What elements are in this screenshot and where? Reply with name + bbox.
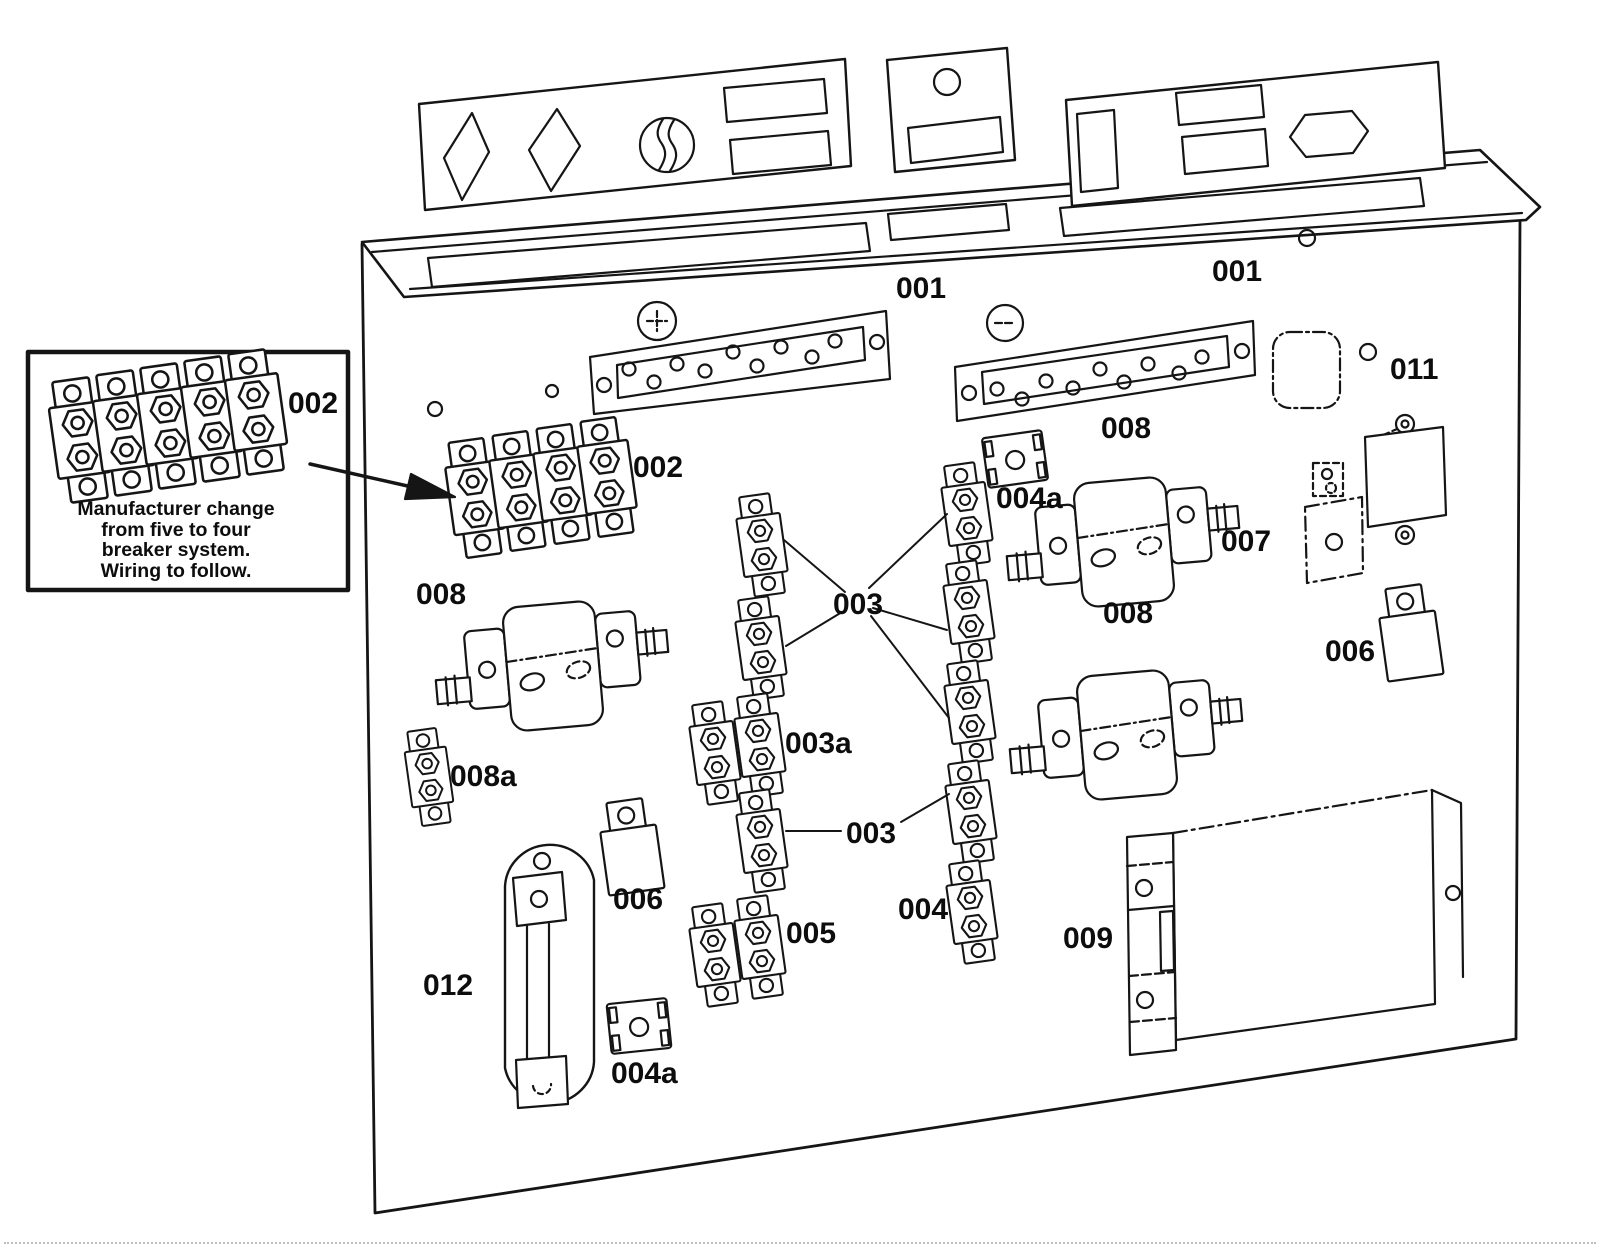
part-label-002-inset: 002 bbox=[288, 387, 338, 421]
part-label-004a-bottom: 004a bbox=[611, 1057, 678, 1091]
part-label-011: 011 bbox=[1390, 353, 1438, 387]
manufacturer-change-note: Manufacturer change from five to four br… bbox=[40, 499, 312, 581]
part-label-005: 005 bbox=[786, 917, 836, 951]
part-label-009: 009 bbox=[1063, 922, 1113, 956]
bottom-divider bbox=[4, 1242, 1596, 1244]
part-label-004: 004 bbox=[898, 893, 948, 927]
punched-plate-left bbox=[419, 59, 851, 210]
part-label-001-top-center: 001 bbox=[896, 272, 946, 306]
link-012 bbox=[505, 845, 594, 1108]
part-label-006-right: 006 bbox=[1325, 635, 1375, 669]
part-label-003-lower: 003 bbox=[846, 817, 896, 851]
part-label-004a-top: 004a bbox=[996, 482, 1063, 516]
part-label-006-left: 006 bbox=[613, 883, 663, 917]
part-label-008-left: 008 bbox=[416, 578, 466, 612]
punched-plate-middle bbox=[887, 48, 1015, 172]
part-label-007: 007 bbox=[1221, 525, 1271, 559]
part-label-003-upper: 003 bbox=[833, 588, 883, 622]
part-label-002-main: 002 bbox=[633, 451, 683, 485]
diagram-canvas: 001 001 011 002 008 008 004a 007 008 006… bbox=[0, 0, 1600, 1249]
bracket-004a-top bbox=[982, 430, 1048, 488]
bracket-004a-bottom bbox=[607, 998, 672, 1054]
part-label-008-busbar: 008 bbox=[1101, 412, 1151, 446]
part-label-003a: 003a bbox=[785, 727, 852, 761]
part-label-001-top-right: 001 bbox=[1212, 255, 1262, 289]
breakers-column-004 bbox=[938, 461, 1000, 965]
part-label-008a: 008a bbox=[450, 760, 517, 794]
diagram-artwork bbox=[0, 0, 1600, 1249]
part-label-012: 012 bbox=[423, 969, 473, 1003]
part-label-008-right: 008 bbox=[1103, 597, 1153, 631]
